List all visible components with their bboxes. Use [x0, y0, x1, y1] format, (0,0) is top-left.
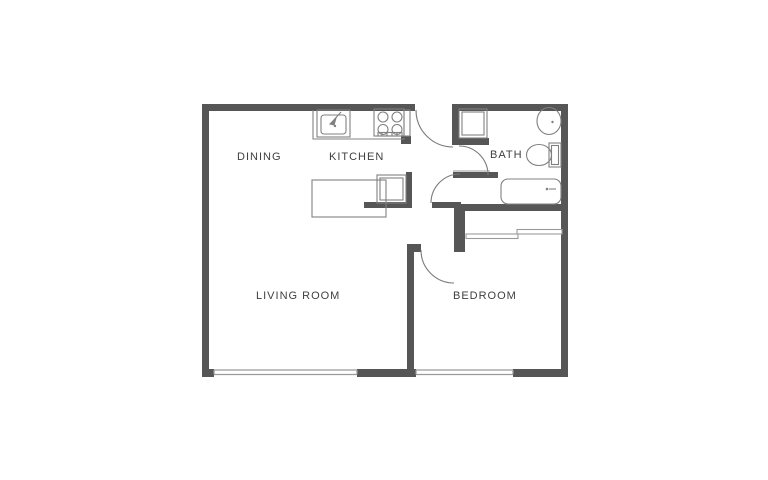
bedroom-label: BEDROOM [453, 290, 517, 303]
kitchen-cabinet-inner [380, 178, 403, 200]
kitchen-cabinet-outer [377, 175, 406, 203]
hall-door-arc [431, 174, 460, 203]
bedroom-closet [466, 230, 562, 239]
toilet-tank [549, 143, 561, 167]
kitchen-counter-end-panel [404, 110, 410, 136]
stove-burner [378, 112, 388, 122]
kitchen-sink-drain [334, 125, 336, 127]
kitchen-peninsula-wall [406, 172, 412, 208]
stove-icon [374, 109, 404, 136]
kitchen-peninsula-counter [312, 180, 386, 217]
living-bedroom-divider-wall [407, 250, 414, 377]
dining-room-label: DINING [237, 151, 282, 164]
floor-plan: DINING KITCHEN BATH LIVING ROOM BEDROOM [0, 0, 768, 480]
exterior-walls [202, 104, 568, 377]
entry-closet [459, 109, 487, 138]
kitchen-sink-icon [317, 110, 350, 137]
bath-bedroom-wall [454, 204, 568, 211]
living-room-window [214, 370, 357, 375]
right-wall [561, 104, 568, 377]
bathtub-drain [546, 188, 549, 191]
living-room-label: LIVING ROOM [256, 290, 340, 303]
kitchen-counter-outline [313, 110, 405, 139]
bottom-wall-right [513, 369, 568, 377]
entry-closet-inner [462, 112, 484, 135]
stove-burner [392, 112, 402, 122]
hall-bedroom-wall [454, 211, 465, 252]
kitchen-peninsula [312, 175, 406, 217]
entry-closet-outer [459, 109, 487, 138]
bath-tub-nook-wall [453, 172, 498, 178]
closet-slider-right [517, 230, 562, 235]
kitchen-counter-end-wall [401, 136, 411, 144]
closet-slider-left [466, 234, 518, 239]
bedroom-door-arc [421, 250, 454, 283]
bedroom-window-jambs [416, 370, 513, 375]
kitchen-label: KITCHEN [329, 151, 384, 164]
kitchen-sink-faucet-head [330, 118, 336, 125]
bathtub-outline [501, 179, 561, 204]
entry-door-arc [416, 110, 453, 147]
toilet-tank-inner [552, 146, 559, 165]
bottom-wall-left-corner [202, 369, 214, 377]
toilet-icon [527, 143, 562, 167]
bathroom-sink-drain [551, 121, 553, 123]
floor-plan-drawing [0, 0, 768, 480]
living-room-window-jambs [214, 370, 357, 375]
left-wall [202, 104, 209, 377]
top-wall-left [202, 104, 415, 111]
bedroom-window [416, 370, 513, 375]
bath-label: BATH [490, 149, 523, 162]
entry-closet-south-wall [452, 138, 489, 145]
bathroom-sink-icon [537, 108, 561, 135]
bathtub-icon [501, 179, 561, 204]
bathroom-sink-bowl [537, 108, 561, 135]
hall-door-leaf [432, 202, 461, 208]
toilet-bowl [527, 145, 552, 166]
